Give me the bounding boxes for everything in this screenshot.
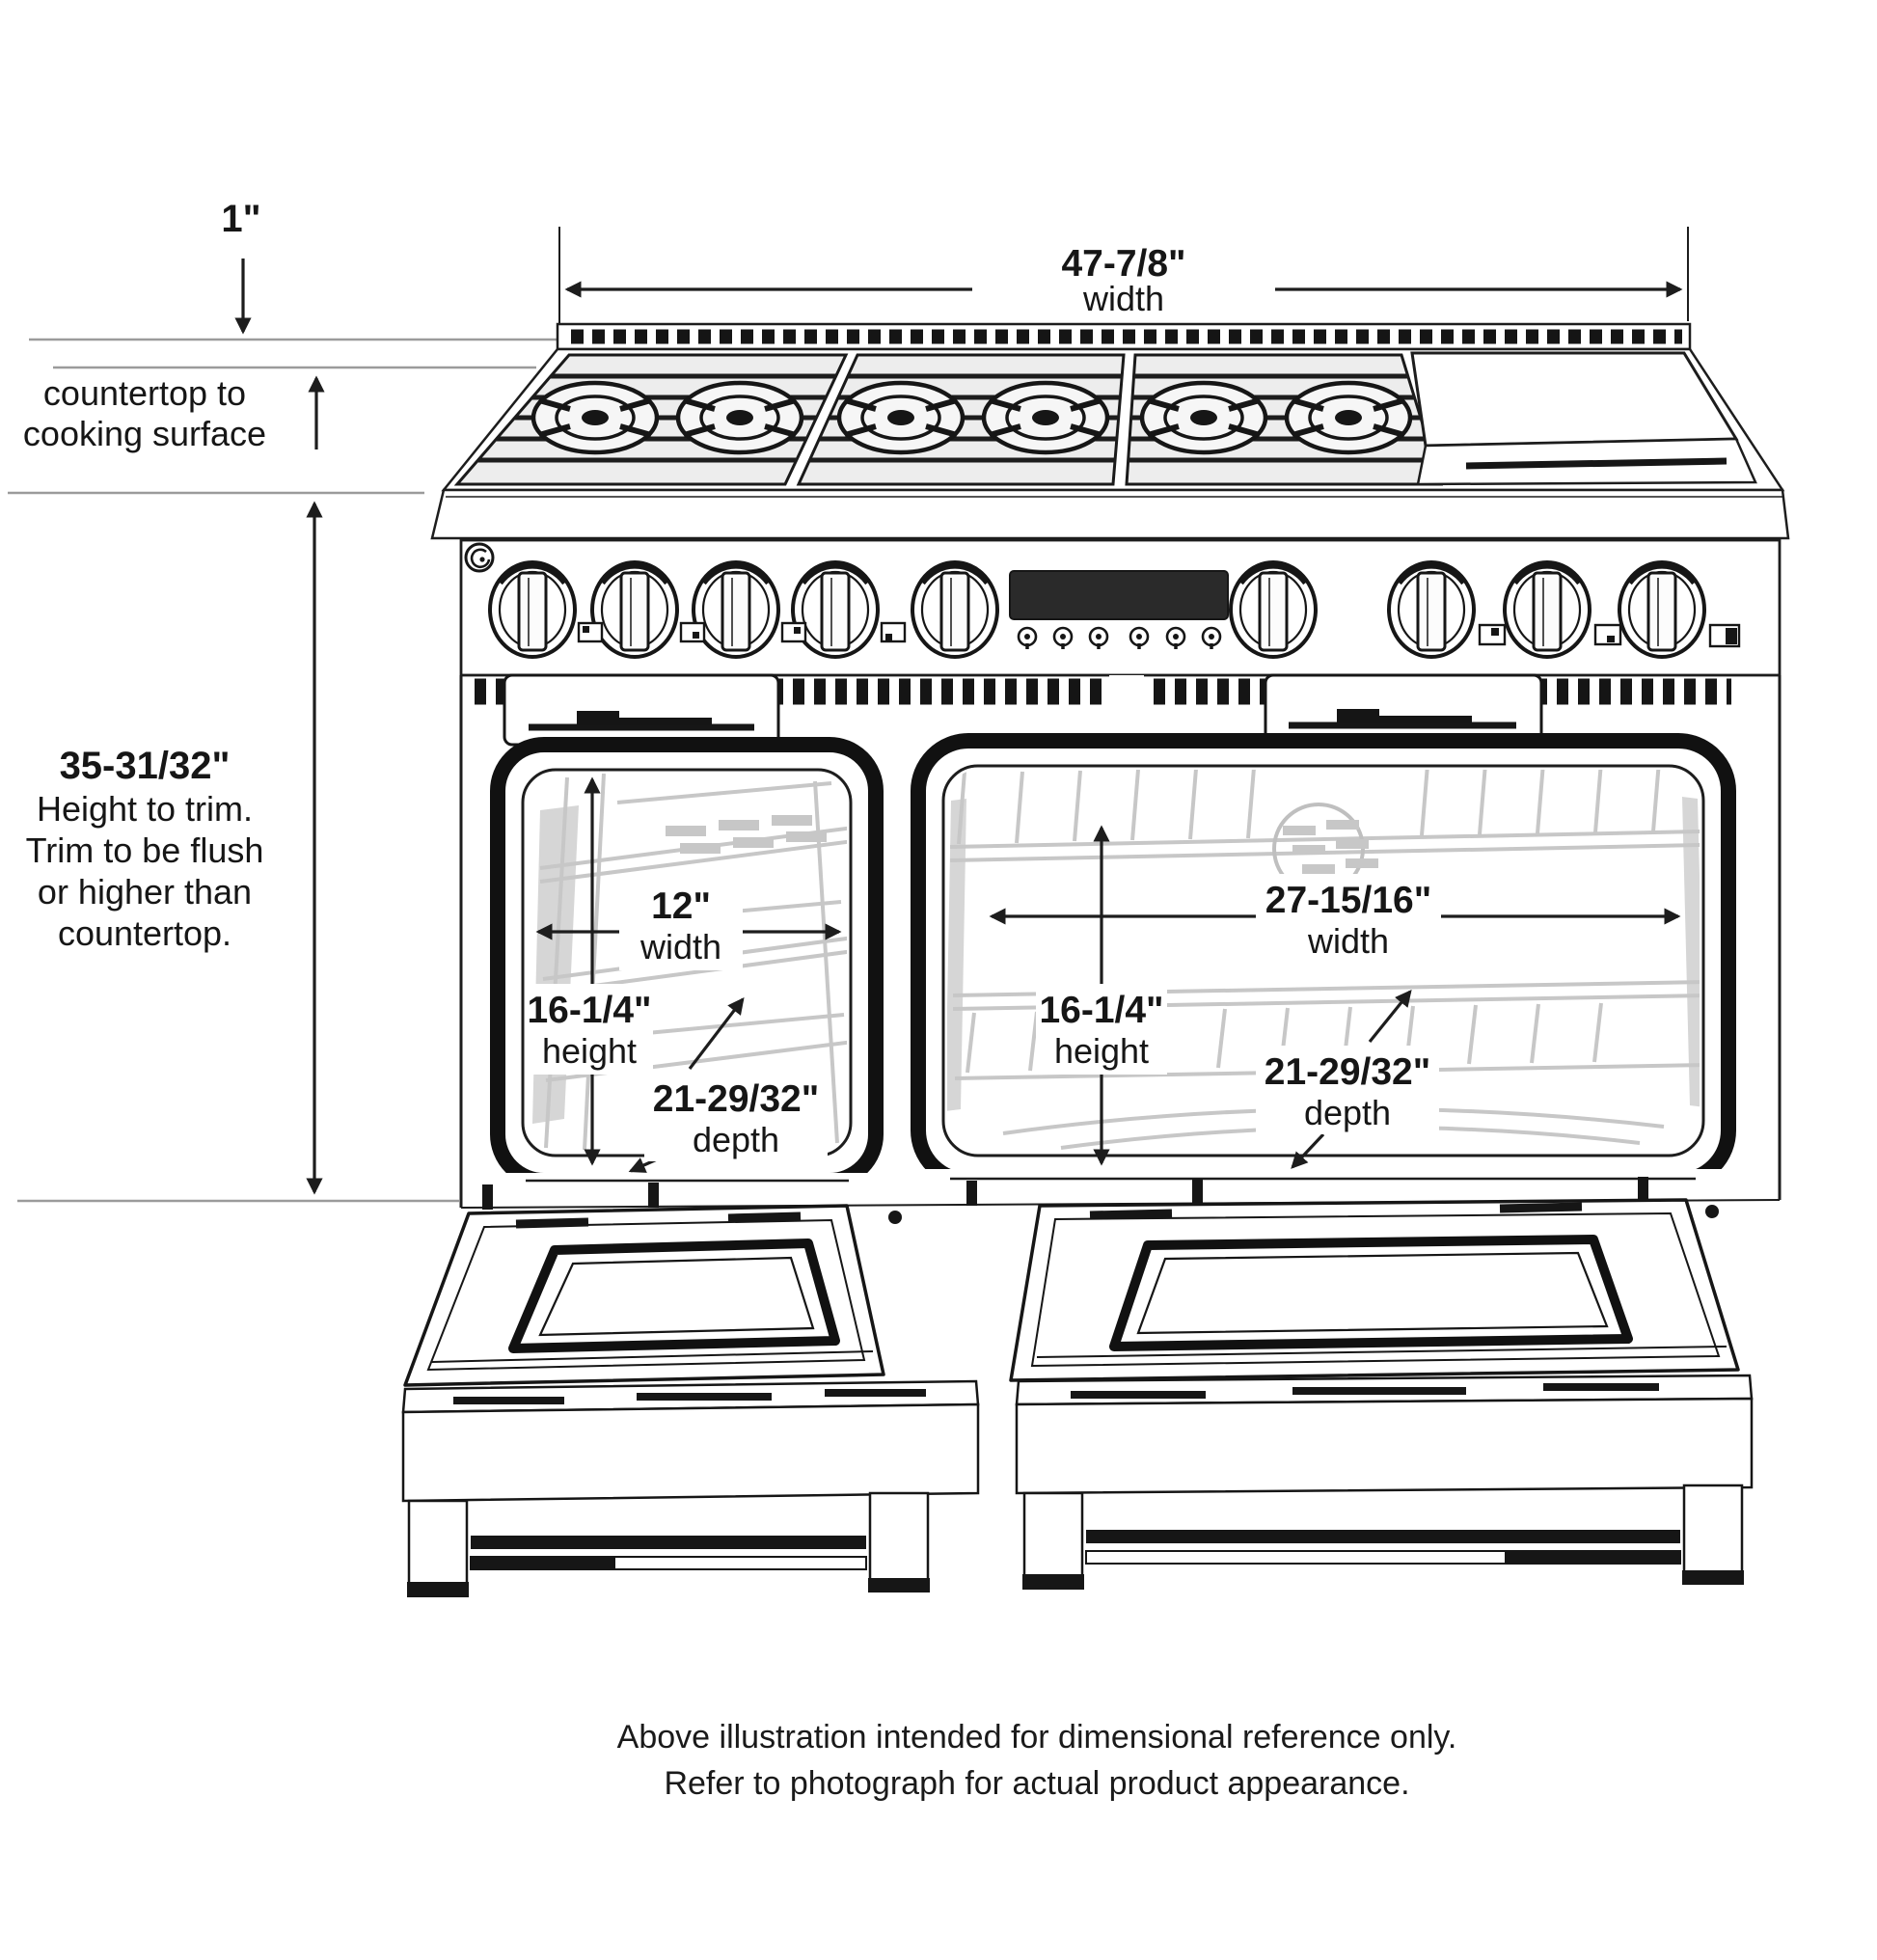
right-oven-height-unit: height	[1054, 1031, 1149, 1071]
left-oven-height-value: 16-1/4"	[527, 990, 651, 1031]
kick-rail	[471, 1536, 866, 1549]
height-to-trim-note2: Trim to be flush	[26, 830, 264, 870]
left-oven-depth-unit: depth	[693, 1120, 779, 1159]
overall-width-unit: width	[1082, 279, 1164, 318]
burner-knob[interactable]	[694, 562, 778, 657]
height-to-trim-dimension: 35-31/32" Height to trim. Trim to be flu…	[26, 504, 314, 1192]
burner-icon	[984, 383, 1107, 452]
countertop-note-line1: countertop to	[43, 373, 246, 413]
burner-icon	[839, 383, 963, 452]
right-oven-door[interactable]	[1011, 1200, 1738, 1380]
left-oven-door[interactable]	[405, 1206, 884, 1385]
burner-icon	[678, 383, 802, 452]
oven-display	[1010, 571, 1228, 619]
diagram-canvas: 1" countertop to cooking surface 35-31/3…	[0, 0, 1877, 1955]
height-to-trim-note4: countertop.	[58, 913, 231, 953]
burner-knob[interactable]	[1505, 562, 1590, 657]
right-oven-width-value: 27-15/16"	[1265, 880, 1431, 921]
burner-knob[interactable]	[793, 562, 878, 657]
left-oven-height-unit: height	[542, 1031, 637, 1071]
height-to-trim-value: 35-31/32"	[60, 745, 231, 787]
top-offset-dimension: 1"	[221, 198, 260, 332]
top-offset-value: 1"	[221, 198, 260, 240]
range-leg	[1684, 1485, 1742, 1574]
right-oven-depth-value: 21-29/32"	[1265, 1051, 1430, 1093]
burner-knob[interactable]	[1619, 562, 1704, 657]
left-oven-cavity: 12" width 16-1/4" height 21-29/32" depth	[498, 745, 876, 1192]
right-oven-width-unit: width	[1307, 921, 1389, 961]
height-to-trim-note3: or higher than	[38, 872, 252, 912]
burner-knob[interactable]	[912, 562, 997, 657]
caption-line1: Above illustration intended for dimensio…	[617, 1719, 1457, 1756]
cooktop	[424, 324, 1788, 538]
height-to-trim-note1: Height to trim.	[37, 789, 253, 829]
countertop-to-cooking-surface-note: countertop to cooking surface	[23, 373, 316, 453]
countertop-note-line2: cooking surface	[23, 414, 266, 453]
left-oven-width-value: 12"	[651, 885, 711, 927]
left-oven-depth-value: 21-29/32"	[653, 1078, 819, 1120]
right-base	[1017, 1375, 1752, 1590]
overall-width-dimension: 47-7/8" width	[559, 227, 1688, 336]
range-dimension-diagram: 1" countertop to cooking surface 35-31/3…	[0, 0, 1877, 1955]
left-base	[403, 1381, 978, 1597]
burner-knob[interactable]	[1389, 562, 1474, 657]
burner-icon	[1287, 383, 1410, 452]
range-leg	[1024, 1493, 1082, 1578]
control-panel	[461, 540, 1780, 675]
right-oven-depth-unit: depth	[1304, 1093, 1391, 1132]
caption: Above illustration intended for dimensio…	[617, 1719, 1457, 1802]
left-oven-width-unit: width	[639, 927, 721, 966]
brand-logo	[466, 544, 493, 571]
kick-rail	[1086, 1530, 1680, 1543]
range-leg	[409, 1501, 467, 1586]
burner-knob[interactable]	[490, 562, 575, 657]
burner-knob[interactable]	[592, 562, 677, 657]
range-leg	[870, 1493, 928, 1582]
oven-knob[interactable]	[1231, 562, 1316, 657]
caption-line2: Refer to photograph for actual product a…	[664, 1765, 1409, 1802]
left-door-latch	[504, 675, 778, 745]
burner-icon	[533, 383, 657, 452]
right-oven-height-value: 16-1/4"	[1039, 990, 1163, 1031]
right-oven-cavity: 27-15/16" width 16-1/4" height 21-29/32"…	[918, 741, 1728, 1190]
burner-icon	[1142, 383, 1265, 452]
